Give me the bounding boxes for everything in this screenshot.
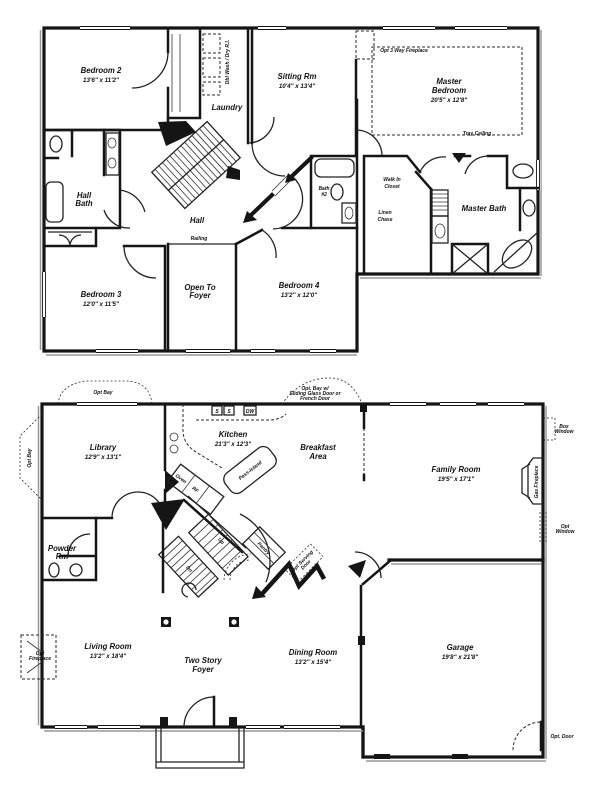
- svg-text:Opt Bay: Opt Bay: [93, 390, 112, 396]
- svg-text:Bedroom: Bedroom: [432, 86, 466, 95]
- svg-text:Opt. Door: Opt. Door: [550, 734, 574, 740]
- svg-text:French Door: French Door: [300, 396, 331, 402]
- svg-text:Tray Ceiling: Tray Ceiling: [463, 131, 492, 137]
- svg-text:Laundry: Laundry: [212, 103, 243, 112]
- svg-text:21'3" x 12'3": 21'3" x 12'3": [214, 441, 251, 448]
- svg-text:12'9" x 13'1": 12'9" x 13'1": [85, 454, 121, 461]
- svg-text:Foyer: Foyer: [192, 665, 214, 674]
- svg-text:Bedroom 2: Bedroom 2: [81, 66, 122, 75]
- svg-text:Breakfast: Breakfast: [300, 443, 336, 452]
- svg-text:Master Bath: Master Bath: [462, 204, 507, 213]
- svg-text:Garage: Garage: [447, 643, 475, 652]
- svg-text:Opt Bay: Opt Bay: [27, 448, 33, 467]
- svg-text:Sitting Rm: Sitting Rm: [278, 72, 317, 81]
- svg-text:Hall: Hall: [190, 216, 205, 225]
- svg-text:Opt 3 Way Fireplace: Opt 3 Way Fireplace: [380, 48, 428, 54]
- svg-text:Area: Area: [308, 452, 327, 461]
- svg-text:Two Story: Two Story: [184, 656, 222, 665]
- svg-text:Chase: Chase: [377, 217, 392, 223]
- svg-text:13'2" x 12'0": 13'2" x 12'0": [281, 292, 317, 299]
- svg-text:19'5" x 17'1": 19'5" x 17'1": [438, 476, 474, 483]
- svg-text:Walk In: Walk In: [383, 177, 400, 183]
- svg-text:Rm: Rm: [56, 552, 69, 561]
- svg-text:Bath: Bath: [75, 199, 93, 208]
- svg-text:Dbl Wash / Dry R.I.: Dbl Wash / Dry R.I.: [225, 40, 231, 84]
- svg-text:10'4" x 13'4": 10'4" x 13'4": [279, 83, 315, 90]
- svg-text:Kitchen: Kitchen: [219, 430, 248, 439]
- svg-text:Railing: Railing: [191, 236, 208, 242]
- svg-text:Fireplace: Fireplace: [29, 656, 51, 662]
- svg-text:13'2" x 18'4": 13'2" x 18'4": [90, 653, 126, 660]
- svg-text:Foyer: Foyer: [189, 291, 211, 300]
- svg-text:13'6" x 11'2": 13'6" x 11'2": [83, 77, 119, 84]
- svg-text:#2: #2: [321, 192, 327, 198]
- svg-text:20'5" x 12'8": 20'5" x 12'8": [430, 97, 467, 104]
- svg-text:13'2" x 15'4": 13'2" x 15'4": [295, 659, 331, 666]
- svg-text:Window: Window: [554, 429, 574, 435]
- svg-text:Master: Master: [436, 77, 462, 86]
- svg-text:Gas Fireplace: Gas Fireplace: [534, 465, 540, 498]
- svg-text:19'8" x 21'8": 19'8" x 21'8": [442, 654, 478, 661]
- svg-text:Bedroom 3: Bedroom 3: [81, 290, 122, 299]
- svg-text:Bedroom 4: Bedroom 4: [279, 281, 320, 290]
- svg-text:Dining Room: Dining Room: [289, 648, 338, 657]
- svg-text:Family Room: Family Room: [432, 465, 481, 474]
- svg-text:DW: DW: [246, 409, 256, 415]
- svg-text:Closet: Closet: [384, 184, 400, 190]
- svg-text:Linen: Linen: [378, 210, 391, 216]
- svg-text:Living Room: Living Room: [84, 642, 131, 651]
- svg-text:12'0" x 11'5": 12'0" x 11'5": [83, 301, 119, 308]
- svg-text:Window: Window: [555, 529, 575, 535]
- svg-text:Library: Library: [90, 443, 117, 452]
